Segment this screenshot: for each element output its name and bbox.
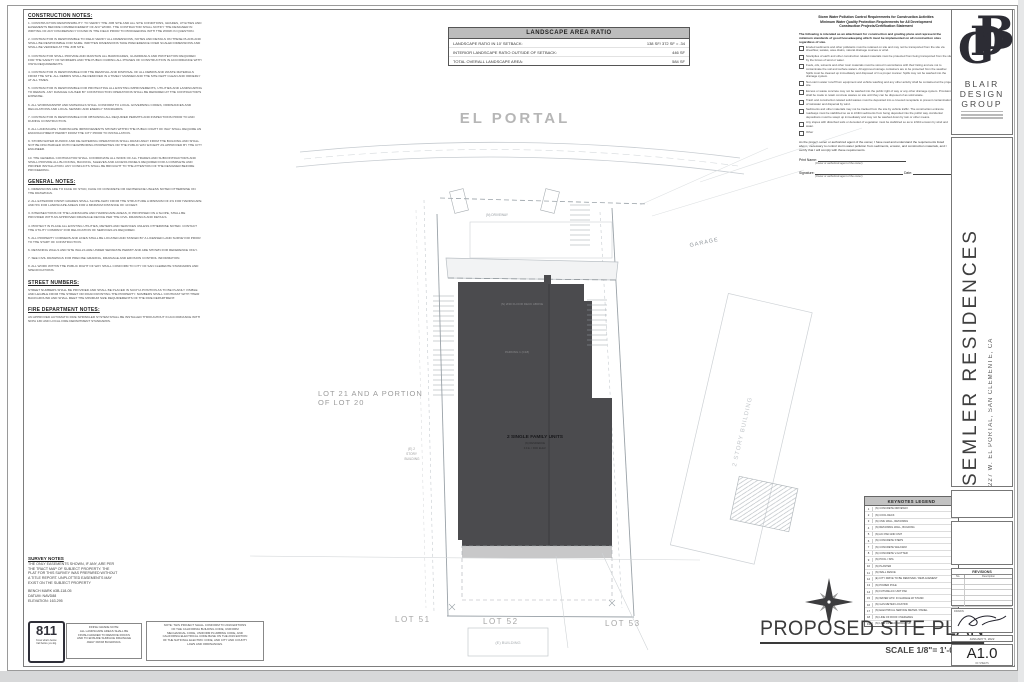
- keynote-number: 1: [865, 507, 873, 511]
- notes-section-heading: CONSTRUCTION NOTES:: [28, 13, 202, 19]
- survey-mark-left: [449, 604, 455, 610]
- notes-section: GENERAL NOTES: 1. DIMENSIONS ARE TO FACE…: [28, 179, 202, 273]
- sheet-number: A1.0: [952, 645, 1012, 663]
- existing-2story-line3: BUILDING: [404, 457, 420, 461]
- call-811-number: 811: [30, 623, 63, 640]
- notes-section-body: AN APPROVED AUTOMATIC FIRE SPRINKLER SYS…: [28, 315, 202, 323]
- landscape-table-row: TOTAL OVERALL LANDSCAPE AREA: 584 SF: [449, 57, 689, 65]
- keynote-number: 3: [865, 519, 873, 523]
- existing-2story-label: (E) 2 STORY BUILDING: [404, 447, 420, 461]
- survey-notes-block: SURVEY NOTES THE ONLY EASEMENTS SHOWN, I…: [28, 556, 156, 603]
- signature-box: DRAWN: [951, 608, 1013, 633]
- revisions-col-no: No.: [952, 575, 965, 578]
- footprint-main-label: 2 SINGLE FAMILY UNITS: [507, 434, 564, 440]
- building-footprint: [458, 275, 612, 546]
- existing-2story-line1: (E) 2: [408, 447, 415, 451]
- lot-53-label: LOT 53: [605, 619, 641, 628]
- survey-mark-right: [609, 600, 615, 606]
- finish-grade-note: FINISH GRADE NOTE: ALL LANDSCAPE AREAS S…: [66, 623, 142, 659]
- firm-logo-box: B G D BLAIR DESIGN GROUP: [951, 9, 1013, 135]
- keynote-number: 8: [865, 551, 873, 555]
- notes-section-heading: FIRE DEPARTMENT NOTES:: [28, 307, 202, 313]
- project-address: 227 W. EL PORTAL, SAN CLEMENTE, CA: [988, 138, 994, 486]
- keynote-text: (N) CONCRETE STEPS: [873, 539, 903, 542]
- keynotes-rows: 1 (N) CONCRETE DRIVEWAY 2 (N) COOL DECK …: [865, 506, 958, 626]
- elevation: ELEVATION: 163.295: [28, 599, 156, 603]
- revisions-box: REVISIONS No. Description: [951, 568, 1013, 606]
- keynote-text: (N) FUTURE A/C UNIT PAD: [873, 590, 907, 593]
- existing-building-label: (E) BUILDING: [495, 640, 520, 645]
- notes-section: STREET NUMBERS: STREET NUMBERS SHALL BE …: [28, 280, 202, 300]
- lot-21-label-line2: OF LOT 20: [318, 398, 364, 407]
- keynote-text: (N) COOL DECK: [873, 514, 895, 517]
- sheet-scale: SCALE 1/8"= 1'-0": [820, 645, 958, 655]
- footprint-sub-2: F.F.E. / PAD ELEV.: [524, 446, 547, 450]
- page-edge-right: [1018, 0, 1024, 682]
- landscape-area-ratio-table: LANDSCAPE AREA RATIO LANDSCAPE RATIO IN …: [448, 27, 690, 66]
- titleblock-edge-strip: [1014, 9, 1018, 665]
- front-deck-outline: [470, 222, 612, 258]
- stormwater-intro: The following is intended as an attachme…: [799, 32, 953, 44]
- site-plan-drawing: EL PORTAL (N) DRIVEWAY GARAGE 2 STORY BU…: [200, 85, 870, 670]
- survey-notes-heading: SURVEY NOTES: [28, 556, 156, 561]
- leader-lines: [640, 120, 870, 320]
- notes-section: CONSTRUCTION NOTES: 1. CONSTRUCTION RESP…: [28, 13, 202, 172]
- garage-label: GARAGE: [689, 237, 719, 249]
- driveway-area: [446, 258, 618, 280]
- sheet-number-caption: OF SHEETS: [952, 663, 1012, 665]
- notes-section-body: STREET NUMBERS SHALL BE PROVIDED AND SHA…: [28, 288, 202, 300]
- setback-line-left-2: [416, 210, 426, 608]
- keynote-number: 17: [865, 609, 873, 613]
- landscape-row-label: INTERIOR LANDSCAPE RATIO OUTSIDE OF SETB…: [453, 50, 557, 55]
- lot-division-line-1: [556, 556, 568, 648]
- keynote-text: (N) ELECTRICAL SERVICE METER / PANEL: [873, 609, 928, 612]
- firm-address-line: [961, 111, 1003, 113]
- stormwater-item: Eroded sediments and other pollutants mu…: [799, 46, 953, 53]
- keynote-number: 2: [865, 513, 873, 517]
- keynote-number: 15: [865, 596, 873, 600]
- datum: DATUM: NAVD88: [28, 594, 156, 598]
- stormwater-item-text: Stockpiles of earth and other constructi…: [806, 55, 953, 62]
- keynote-number: 10: [865, 564, 873, 568]
- sheet-number-box: A1.0 OF SHEETS: [951, 644, 1013, 666]
- keynote-text: (N) CONCRETE V-GUTTER: [873, 552, 908, 555]
- neighbor-building-label: 2 STORY BUILDING: [732, 396, 754, 467]
- survey-notes-body: THE ONLY EASEMENTS SHOWN, IF ANY, ARE PE…: [28, 562, 156, 585]
- keynote-text: (N) CMU WALL, RETAINING: [873, 520, 908, 523]
- call-811-logo: 811 Know what's below. Call before you d…: [28, 621, 65, 663]
- stair-hatch-right-upper: [570, 205, 590, 245]
- footprint-sub-1: (N) RESIDENCE: [525, 441, 545, 445]
- street-name-label: EL PORTAL: [460, 110, 571, 127]
- stair-hatch-left-lower: [433, 350, 454, 395]
- keynotes-title: KEYNOTES LEGEND: [865, 497, 958, 506]
- keynote-number: 11: [865, 571, 873, 575]
- landscape-table-row: LANDSCAPE RATIO IN 10' SETBACK: 138 SF/ …: [449, 39, 689, 48]
- page-edge-bottom: [0, 671, 1024, 682]
- call-811-tagline-2: Call before you dig.: [30, 643, 63, 646]
- drawn-label: DRAWN: [954, 610, 964, 613]
- firm-name-line-3: GROUP: [952, 100, 1012, 110]
- sheet-title: PROPOSED SITE PLAN: [760, 617, 960, 644]
- project-title: SEMLER RESIDENCES: [960, 138, 982, 486]
- keynotes-legend: KEYNOTES LEGEND 1 (N) CONCRETE DRIVEWAY …: [864, 496, 959, 627]
- keynote-text: (N) RETAINING WALL, BUILDING: [873, 526, 915, 529]
- firm-monogram: B G D: [952, 10, 1012, 80]
- footprint-note-2: PARKING 1 (C18): [505, 350, 529, 354]
- keynote-number: 13: [865, 583, 873, 587]
- notes-section-heading: GENERAL NOTES:: [28, 179, 202, 185]
- stair-hatch-left-upper: [433, 296, 454, 341]
- street-centerline: [304, 150, 738, 166]
- landscape-row-value: 584 SF: [672, 59, 685, 64]
- landscape-row-value: 138 SF/ 372 SF = .34: [647, 41, 685, 46]
- date-strip: JANUARY 5, 2022: [951, 635, 1013, 642]
- property-line-left: [437, 214, 448, 616]
- lot-21-label-line1: LOT 21 AND A PORTION: [318, 389, 423, 398]
- landscape-table-row: INTERIOR LANDSCAPE RATIO OUTSIDE OF SETB…: [449, 48, 689, 57]
- stormwater-heading: Storm Water Pollution Control Requiremen…: [799, 15, 953, 29]
- date-label: Date:: [904, 171, 912, 175]
- checkbox-icon: [799, 64, 804, 69]
- keynote-number: 12: [865, 577, 873, 581]
- keynote-text: (N) WATER HTR. IN GARAGE W/ STAND: [873, 597, 924, 600]
- landscape-table-title: LANDSCAPE AREA RATIO: [449, 28, 689, 39]
- titleblock-empty-box-2: [951, 521, 1013, 565]
- keynote-number: 7: [865, 545, 873, 549]
- revisions-row: [952, 601, 1012, 607]
- existing-2story-line2: STORY: [406, 452, 418, 456]
- firm-address-line: [961, 114, 1003, 116]
- keynote-number: 9: [865, 558, 873, 562]
- keynote-number: 6: [865, 539, 873, 543]
- keynote-number: 16: [865, 603, 873, 607]
- code-conformance-note: NOTE: THIS PROJECT SHALL CONFORM TO 2019…: [146, 621, 264, 661]
- landscape-row-label: LANDSCAPE RATIO IN 10' SETBACK:: [453, 41, 523, 46]
- lot-21-label: LOT 21 AND A PORTION OF LOT 20: [318, 389, 426, 407]
- compass-center: [827, 600, 831, 604]
- rear-patio-band: [462, 546, 612, 558]
- landscape-row-value: 446 SF: [672, 50, 685, 55]
- keynote-text: (N) GAS METER LOCATION: [873, 603, 908, 606]
- apron-mark-left: [450, 189, 469, 214]
- stormwater-item-text: Eroded sediments and other pollutants mu…: [806, 46, 953, 53]
- bench-mark: BENCH MARK #3B-118-05: [28, 589, 156, 593]
- keynote-text: (N) CONCRETE WALKWAY: [873, 546, 907, 549]
- landscape-table-rows: LANDSCAPE RATIO IN 10' SETBACK: 138 SF/ …: [449, 39, 689, 65]
- keynote-text: (N) A/C PAD AND UNIT: [873, 533, 902, 536]
- keynote-number: 5: [865, 532, 873, 536]
- hatched-structure: [730, 476, 798, 532]
- lot-51-label: LOT 51: [395, 615, 431, 624]
- driveway-label: (N) DRIVEWAY: [486, 213, 509, 217]
- lot-52-label: LOT 52: [483, 617, 519, 626]
- keynote-text: (E) CITY DRIVE TO BE REMOVED / REPLACEME…: [873, 577, 938, 580]
- keynote-text: (N) WALL FENCE: [873, 571, 896, 574]
- keynote-number: 4: [865, 526, 873, 530]
- landscape-row-label: TOTAL OVERALL LANDSCAPE AREA:: [453, 59, 523, 64]
- keynote-text: (N) CONCRETE DRIVEWAY: [873, 507, 908, 510]
- notes-section: FIRE DEPARTMENT NOTES: AN APPROVED AUTOM…: [28, 307, 202, 323]
- notes-section-heading: STREET NUMBERS:: [28, 280, 202, 286]
- titleblock-empty-box-1: [951, 490, 1013, 518]
- keynote-text: (N) POOL / SPA: [873, 558, 894, 561]
- setback-line-left: [424, 200, 434, 612]
- date-line: [913, 170, 953, 175]
- stormwater-item-text: Fuels, oils, solvents and other toxic ma…: [806, 64, 953, 79]
- street-curb-line-2: [296, 157, 744, 174]
- notes-section-body: 1. CONSTRUCTION RESPONSIBILITY: TO VERIF…: [28, 21, 202, 172]
- notes-column: CONSTRUCTION NOTES: 1. CONSTRUCTION RESP…: [28, 13, 202, 330]
- property-line-rear: [447, 616, 634, 617]
- monogram-letter-d: D: [970, 18, 1005, 65]
- lot-division-line-2: [602, 553, 648, 650]
- revisions-col-desc: Description: [965, 575, 1012, 578]
- stormwater-item: Stockpiles of earth and other constructi…: [799, 55, 953, 62]
- keynote-text: (N) PLANTER: [873, 565, 891, 568]
- keynote-text: (N) POWER POLE: [873, 584, 897, 587]
- stormwater-item: Fuels, oils, solvents and other toxic ma…: [799, 64, 953, 79]
- firm-address-line: [961, 117, 1003, 119]
- project-title-box: SEMLER RESIDENCES 227 W. EL PORTAL, SAN …: [951, 137, 1013, 487]
- street-curb-line: [300, 142, 740, 158]
- property-line-front: [440, 198, 648, 204]
- checkbox-icon: [799, 55, 804, 60]
- checkbox-icon: [799, 46, 804, 51]
- notes-section-body: 1. DIMENSIONS ARE TO FACE OF STUD, FACE …: [28, 187, 202, 273]
- keynote-number: 14: [865, 590, 873, 594]
- footprint-note-1: (N) 2ND FLOOR DECK ABOVE: [501, 302, 543, 306]
